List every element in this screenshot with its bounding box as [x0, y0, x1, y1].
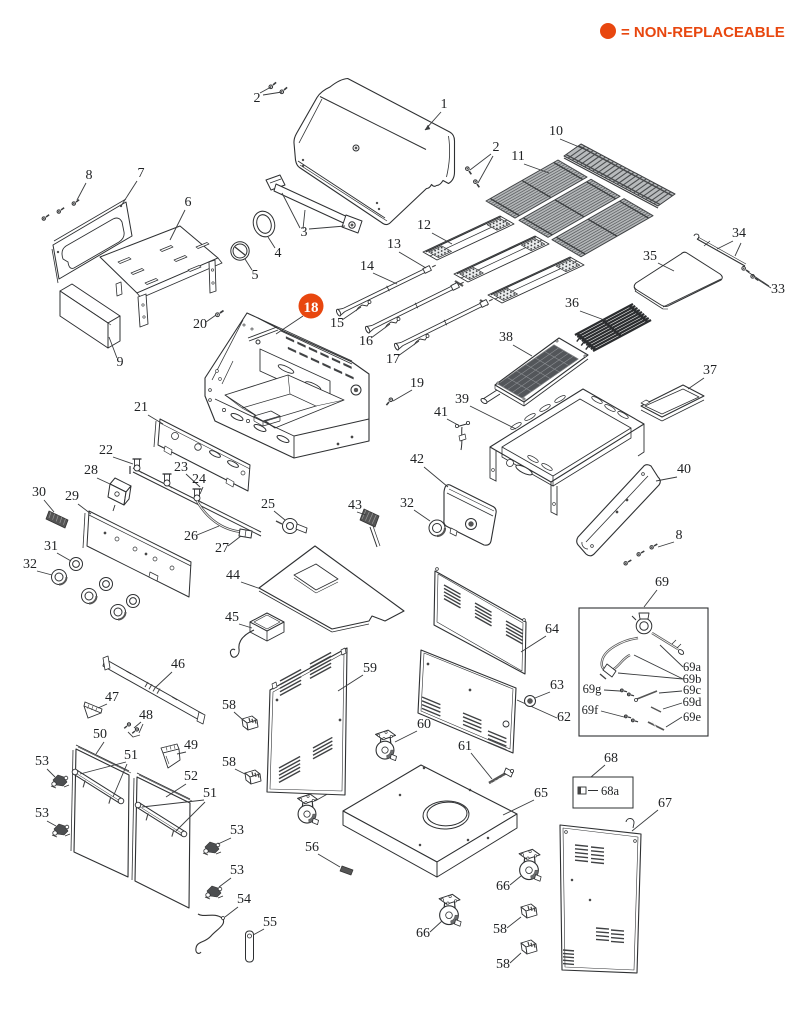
svg-text:49: 49: [184, 738, 198, 753]
svg-text:68: 68: [604, 751, 618, 766]
svg-text:2: 2: [254, 91, 261, 106]
svg-text:42: 42: [410, 452, 424, 467]
svg-text:= NON-REPLACEABLE: = NON-REPLACEABLE: [621, 24, 785, 41]
svg-text:43: 43: [348, 498, 362, 513]
svg-text:8: 8: [86, 168, 93, 183]
svg-text:25: 25: [261, 497, 275, 512]
svg-text:22: 22: [99, 443, 113, 458]
svg-text:1: 1: [441, 97, 448, 112]
svg-text:69d: 69d: [683, 695, 703, 709]
svg-text:54: 54: [237, 892, 251, 907]
svg-text:66: 66: [416, 926, 430, 941]
svg-text:2: 2: [493, 140, 500, 155]
svg-text:66: 66: [496, 879, 510, 894]
svg-text:26: 26: [184, 529, 198, 544]
svg-text:14: 14: [360, 259, 374, 274]
svg-text:31: 31: [44, 539, 58, 554]
svg-text:32: 32: [400, 496, 414, 511]
svg-text:3: 3: [301, 225, 308, 240]
svg-text:34: 34: [732, 226, 746, 241]
svg-text:41: 41: [434, 405, 448, 420]
svg-text:59: 59: [363, 661, 377, 676]
svg-text:28: 28: [84, 463, 98, 478]
svg-text:48: 48: [139, 708, 153, 723]
svg-text:5: 5: [252, 268, 259, 283]
svg-text:21: 21: [134, 400, 148, 415]
svg-text:17: 17: [386, 352, 400, 367]
svg-text:24: 24: [192, 472, 206, 487]
svg-text:8: 8: [676, 528, 683, 543]
svg-text:36: 36: [565, 296, 579, 311]
svg-text:9: 9: [117, 355, 124, 370]
svg-text:53: 53: [230, 863, 244, 878]
svg-text:56: 56: [305, 840, 319, 855]
svg-text:65: 65: [534, 786, 548, 801]
svg-text:69e: 69e: [683, 710, 702, 724]
svg-text:55: 55: [263, 915, 277, 930]
svg-text:53: 53: [230, 823, 244, 838]
svg-text:27: 27: [215, 541, 229, 556]
svg-text:46: 46: [171, 657, 185, 672]
svg-text:52: 52: [184, 769, 198, 784]
svg-text:13: 13: [387, 237, 401, 252]
svg-text:16: 16: [359, 334, 373, 349]
svg-text:35: 35: [643, 249, 657, 264]
svg-text:50: 50: [93, 727, 107, 742]
svg-text:53: 53: [35, 806, 49, 821]
svg-text:18: 18: [304, 300, 319, 316]
svg-text:64: 64: [545, 622, 559, 637]
svg-text:40: 40: [677, 462, 691, 477]
svg-text:63: 63: [550, 678, 564, 693]
svg-text:58: 58: [493, 922, 507, 937]
svg-text:12: 12: [417, 218, 431, 233]
svg-text:37: 37: [703, 363, 717, 378]
svg-text:15: 15: [330, 316, 344, 331]
svg-text:69g: 69g: [583, 682, 603, 696]
svg-text:10: 10: [549, 124, 563, 139]
svg-text:47: 47: [105, 690, 119, 705]
svg-text:33: 33: [771, 282, 785, 297]
svg-text:32: 32: [23, 557, 37, 572]
svg-text:67: 67: [658, 796, 672, 811]
svg-text:44: 44: [226, 568, 240, 583]
svg-text:51: 51: [124, 748, 138, 763]
svg-text:69: 69: [655, 575, 669, 590]
svg-text:62: 62: [557, 710, 571, 725]
svg-text:29: 29: [65, 489, 79, 504]
svg-text:53: 53: [35, 754, 49, 769]
svg-text:58: 58: [222, 698, 236, 713]
svg-text:38: 38: [499, 330, 513, 345]
svg-text:68a: 68a: [601, 784, 620, 798]
svg-text:11: 11: [511, 149, 524, 164]
svg-text:58: 58: [222, 755, 236, 770]
svg-text:61: 61: [458, 739, 472, 754]
svg-text:39: 39: [455, 392, 469, 407]
svg-text:20: 20: [193, 317, 207, 332]
svg-text:23: 23: [174, 460, 188, 475]
svg-text:58: 58: [496, 957, 510, 972]
svg-text:51: 51: [203, 786, 217, 801]
svg-text:69f: 69f: [582, 703, 600, 717]
svg-text:60: 60: [417, 717, 431, 732]
svg-text:45: 45: [225, 610, 239, 625]
svg-text:19: 19: [410, 376, 424, 391]
svg-text:4: 4: [275, 246, 282, 261]
svg-text:30: 30: [32, 485, 46, 500]
svg-text:7: 7: [138, 166, 145, 181]
svg-text:6: 6: [185, 195, 192, 210]
